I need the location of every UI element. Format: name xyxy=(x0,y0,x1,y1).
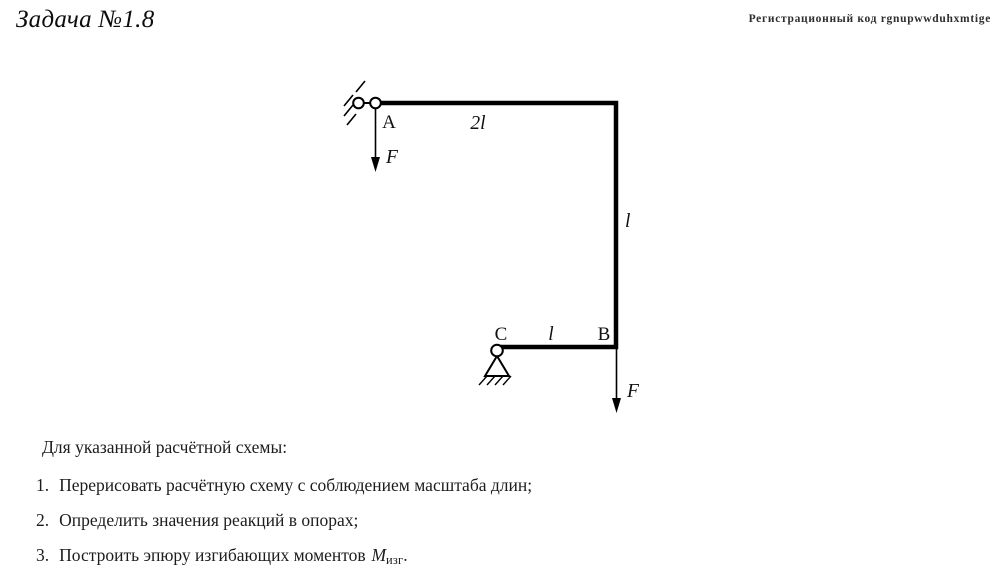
span-l-right-label: l xyxy=(625,211,630,232)
force-b-arrow xyxy=(612,349,621,413)
force-a-arrow xyxy=(371,106,380,172)
moment-period: . xyxy=(403,545,407,565)
task-item-1: 1.Перерисовать расчётную схему с соблюде… xyxy=(36,475,532,496)
ground-hatch-line xyxy=(487,376,495,385)
item-number: 2. xyxy=(36,510,49,531)
wall-hatch-line xyxy=(344,95,353,106)
ground-hatch-line xyxy=(503,376,511,385)
support-c-pin xyxy=(479,345,511,385)
frame-beams xyxy=(380,103,616,347)
moment-subscript: изг xyxy=(386,553,403,567)
wall-pin-circle xyxy=(353,98,364,109)
node-b-label: B xyxy=(598,324,611,345)
item-text: Перерисовать расчётную схему с соблюдени… xyxy=(59,475,532,495)
item-number: 1. xyxy=(36,475,49,496)
item-text: Определить значения реакций в опорах; xyxy=(59,510,358,530)
moment-symbol: M xyxy=(371,545,386,565)
span-l-bottom-label: l xyxy=(548,324,553,345)
task-intro: Для указанной расчётной схемы: xyxy=(42,437,287,458)
arrowhead-down-icon xyxy=(371,157,380,172)
pin-a-circle xyxy=(370,98,381,109)
span-2l-label: 2l xyxy=(470,113,485,134)
force-b-label: F xyxy=(626,381,640,402)
task-item-2: 2.Определить значения реакций в опорах; xyxy=(36,510,358,531)
item-text: Построить эпюру изгибающих моментов xyxy=(59,545,366,565)
node-c-label: C xyxy=(495,324,508,345)
wall-hatch-line xyxy=(356,81,365,92)
task-item-3: 3.Построить эпюру изгибающих моментовMиз… xyxy=(36,545,408,568)
wall-hatch-line xyxy=(344,105,353,116)
support-c-triangle xyxy=(485,356,509,376)
arrowhead-down-icon xyxy=(612,398,621,413)
wall-hatch-line xyxy=(347,114,356,125)
item-number: 3. xyxy=(36,545,49,566)
ground-hatch-line xyxy=(479,376,487,385)
ground-hatch-line xyxy=(495,376,503,385)
node-a-label: A xyxy=(382,112,396,133)
pin-c-circle xyxy=(491,345,503,357)
force-a-label: F xyxy=(385,147,399,168)
